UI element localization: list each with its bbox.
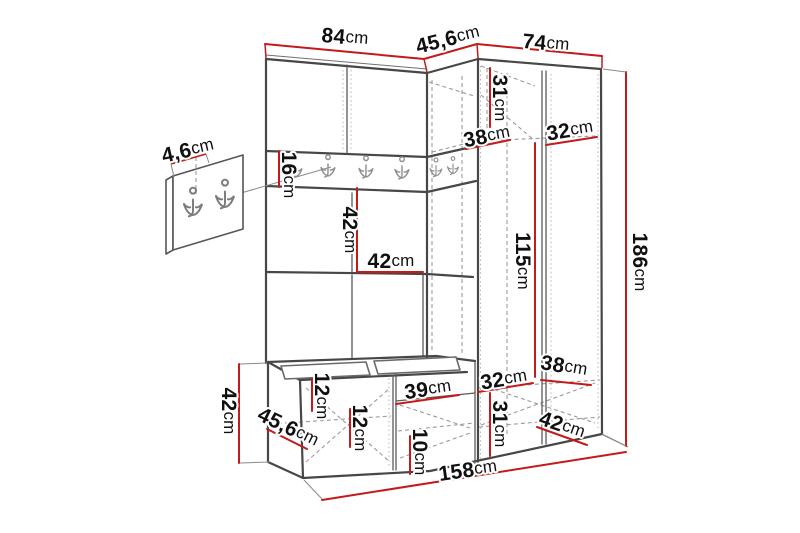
dim-shoe-shelf-height: 10cm	[408, 428, 431, 475]
dim-lower-shelf-width: 32cm	[479, 364, 529, 394]
dim-rail-height: 16cm	[277, 151, 300, 198]
dim-middle-shelf-width: 42cm	[367, 250, 414, 273]
dim-upper-corner-height: 31cm	[488, 74, 511, 121]
dim-bench-inner-lower: 12cm	[348, 404, 371, 451]
diagram-canvas: 84cm 45,6cm 74cm 4,6cm 16cm 31cm 38cm 32…	[0, 0, 800, 533]
dim-total-height: 186cm	[628, 232, 651, 291]
furniture-dimension-diagram: 84cm 45,6cm 74cm 4,6cm 16cm 31cm 38cm 32…	[0, 0, 800, 533]
dim-total-width: 158cm	[437, 455, 499, 486]
dim-wardrobe-inner-height: 115cm	[511, 232, 534, 290]
dimension-labels: 84cm 45,6cm 74cm 4,6cm 16cm 31cm 38cm 32…	[159, 20, 651, 486]
hook-panel-detail	[166, 155, 331, 254]
dim-bench-inner-upper: 12cm	[310, 372, 333, 419]
dim-middle-inner-height: 42cm	[338, 206, 361, 253]
dim-upper-shelf-width: 32cm	[545, 115, 595, 145]
dim-panel-thickness: 4,6cm	[159, 133, 216, 167]
dim-lower-compartment-depth: 42cm	[536, 407, 588, 444]
seat-pad	[374, 357, 460, 374]
coat-hook-icon-row	[288, 155, 459, 179]
dim-top-width-right: 74cm	[522, 30, 571, 57]
dim-bench-height: 42cm	[217, 387, 240, 434]
dim-lower-inner-height: 31cm	[488, 400, 511, 447]
dim-shoe-shelf-width: 39cm	[403, 374, 453, 403]
dim-top-width-left: 84cm	[321, 24, 370, 51]
